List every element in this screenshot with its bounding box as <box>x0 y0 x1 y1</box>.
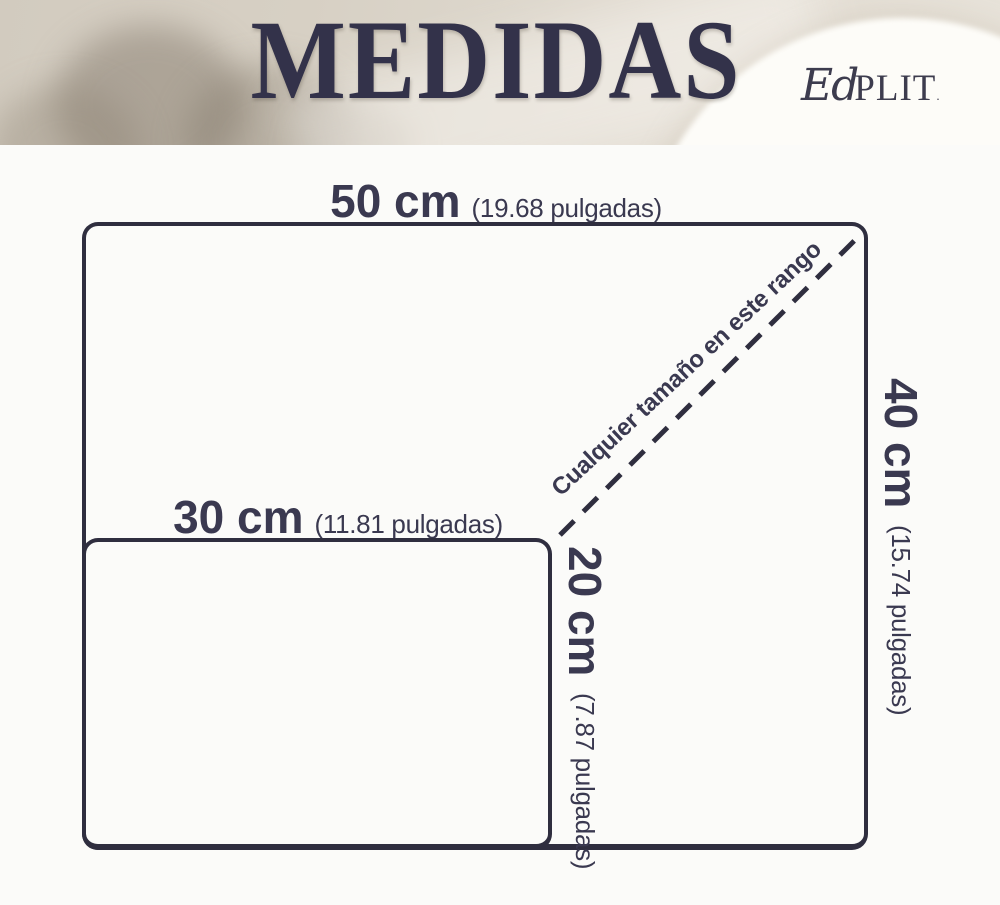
large-rect-width-inches: (19.68 pulgadas) <box>472 193 662 224</box>
small-rect-height-cm: 20 cm <box>559 546 611 676</box>
large-rect-height-inches: (15.74 pulgadas) <box>886 525 916 715</box>
page-title: MEDIDAS <box>251 4 742 117</box>
measurements-infographic: MEDIDAS EdPLIT. 50 cm (19.68 pulgadas) 3… <box>0 0 1000 905</box>
large-rect-width-label: 50 cm (19.68 pulgadas) <box>330 174 662 228</box>
small-rect-height-label: 20 cm (7.87 pulgadas) <box>558 546 612 869</box>
large-rect-height-label: 40 cm (15.74 pulgadas) <box>874 378 928 715</box>
brand-logo-serif: PLIT <box>854 68 936 109</box>
header-banner: MEDIDAS EdPLIT. <box>0 0 1000 145</box>
brand-logo: EdPLIT. <box>801 60 940 111</box>
small-rect-width-label: 30 cm (11.81 pulgadas) <box>173 490 503 544</box>
small-rect-width-inches: (11.81 pulgadas) <box>315 509 503 540</box>
measurement-diagram: 50 cm (19.68 pulgadas) 30 cm (11.81 pulg… <box>0 145 1000 905</box>
brand-logo-script: Ed <box>801 60 857 111</box>
large-rect-width-cm: 50 cm <box>330 174 460 228</box>
small-rect-width-cm: 30 cm <box>173 490 303 544</box>
small-rectangle-outline <box>82 538 552 850</box>
small-rect-height-inches: (7.87 pulgadas) <box>570 693 600 869</box>
large-rect-height-cm: 40 cm <box>875 378 927 508</box>
brand-trademark-dot: . <box>936 88 939 103</box>
